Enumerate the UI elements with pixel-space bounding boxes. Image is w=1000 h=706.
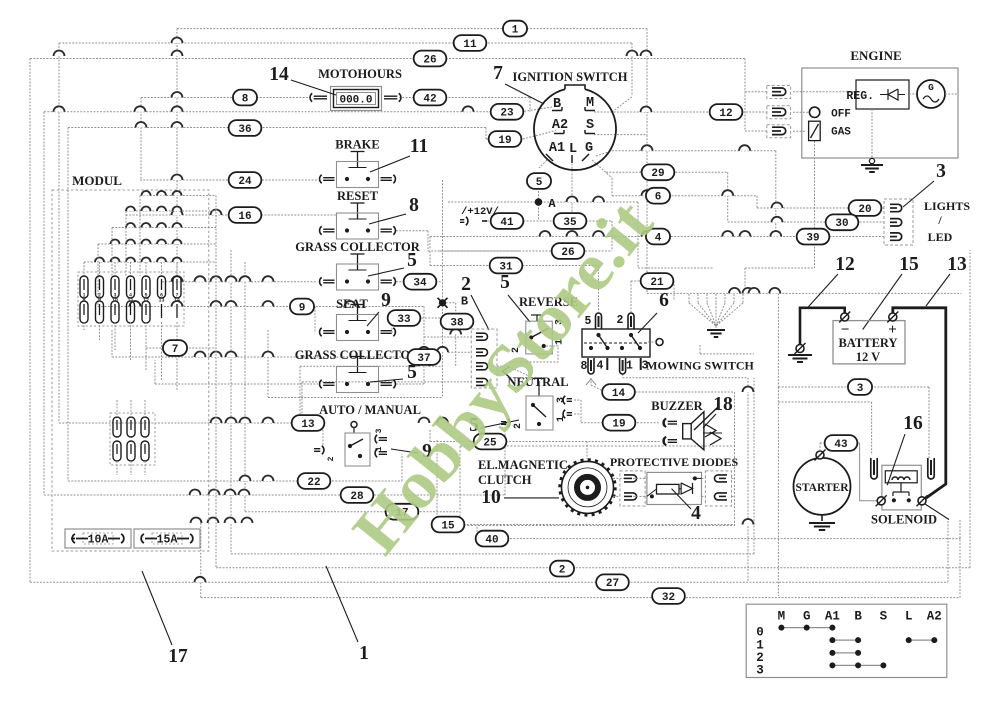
svg-text:13: 13: [301, 419, 315, 431]
svg-text:34: 34: [413, 278, 427, 290]
svg-text:STARTER: STARTER: [795, 482, 849, 494]
svg-text:MOTOHOURS: MOTOHOURS: [318, 67, 402, 81]
svg-text:33: 33: [397, 314, 411, 326]
svg-text:S: S: [586, 118, 594, 133]
svg-text:12: 12: [143, 298, 149, 304]
svg-text:1: 1: [512, 24, 519, 36]
svg-text:5: 5: [407, 250, 417, 271]
svg-text:10: 10: [481, 487, 501, 508]
svg-text:10: 10: [112, 298, 118, 304]
svg-text:9: 9: [381, 290, 391, 311]
svg-text:41: 41: [500, 217, 514, 229]
svg-text:RESET: RESET: [337, 189, 379, 203]
svg-text:IGNITION SWITCH: IGNITION SWITCH: [513, 70, 628, 84]
svg-text:M: M: [586, 96, 594, 111]
svg-text:PROTECTIVE DIODES: PROTECTIVE DIODES: [610, 455, 739, 469]
svg-text:12: 12: [835, 254, 855, 275]
svg-text:SOLENOID: SOLENOID: [871, 513, 937, 527]
svg-text:000.0: 000.0: [339, 95, 372, 107]
svg-text:3: 3: [375, 428, 384, 433]
svg-text:8: 8: [409, 195, 419, 216]
svg-text:13: 13: [158, 298, 164, 304]
svg-text:23: 23: [500, 108, 514, 120]
svg-text:12 V: 12 V: [856, 350, 880, 364]
svg-text:G: G: [928, 82, 934, 93]
svg-text:11: 11: [463, 39, 477, 51]
svg-text:4: 4: [597, 360, 604, 373]
svg-text:M: M: [778, 610, 786, 624]
svg-text:2: 2: [327, 456, 336, 461]
svg-text:BATTERY: BATTERY: [838, 336, 897, 350]
svg-text:3: 3: [756, 664, 764, 678]
svg-text:A1: A1: [549, 141, 565, 156]
svg-text:GAS: GAS: [831, 127, 851, 139]
svg-text:19: 19: [612, 419, 625, 431]
svg-text:AUTO / MANUAL: AUTO / MANUAL: [319, 403, 421, 417]
svg-text:3: 3: [936, 161, 946, 182]
svg-text:1: 1: [375, 446, 384, 451]
svg-text:8: 8: [581, 360, 588, 373]
svg-text:ENGINE: ENGINE: [850, 48, 901, 63]
svg-text:10A: 10A: [88, 534, 109, 547]
svg-text:31: 31: [499, 261, 513, 273]
svg-text:CLUTCH: CLUTCH: [478, 473, 532, 487]
svg-text:B: B: [461, 295, 468, 309]
svg-text:19: 19: [498, 135, 511, 147]
svg-text:L: L: [569, 142, 577, 157]
svg-text:17: 17: [168, 646, 188, 667]
svg-text:B: B: [854, 610, 862, 624]
svg-text:LED: LED: [928, 230, 953, 244]
svg-text:13: 13: [947, 254, 967, 275]
svg-text:2: 2: [513, 423, 524, 429]
svg-text:L: L: [905, 610, 913, 624]
svg-text:A2: A2: [552, 118, 568, 133]
svg-text:14: 14: [269, 64, 289, 85]
svg-text:A1: A1: [825, 610, 840, 624]
svg-text:/: /: [937, 213, 942, 227]
svg-text:11: 11: [410, 136, 428, 157]
svg-text:LIGHTS: LIGHTS: [924, 199, 970, 213]
svg-text:1: 1: [626, 360, 633, 373]
svg-text:15: 15: [441, 520, 455, 532]
svg-text:14: 14: [612, 388, 626, 400]
svg-text:3: 3: [857, 383, 864, 395]
svg-text:OFF: OFF: [831, 109, 851, 121]
svg-text:GRASS COLLECTOR: GRASS COLLECTOR: [295, 240, 420, 254]
svg-text:30: 30: [835, 218, 848, 230]
svg-text:5: 5: [500, 272, 510, 293]
svg-text:2: 2: [461, 274, 471, 295]
svg-text:MOWING SWITCH: MOWING SWITCH: [646, 359, 754, 373]
svg-text:27: 27: [606, 578, 619, 590]
svg-text:5: 5: [536, 177, 543, 189]
svg-text:S: S: [880, 610, 888, 624]
svg-text:20: 20: [858, 204, 871, 216]
svg-text:36: 36: [238, 124, 251, 136]
svg-text:11: 11: [127, 298, 133, 304]
svg-text:6: 6: [655, 192, 662, 204]
svg-text:26: 26: [423, 54, 436, 66]
svg-text:6: 6: [659, 290, 669, 311]
svg-text:40: 40: [485, 534, 498, 546]
svg-text:38: 38: [450, 317, 464, 329]
svg-text:16: 16: [903, 413, 923, 434]
svg-text:7: 7: [172, 344, 179, 356]
svg-text:14: 14: [174, 298, 180, 304]
svg-text:12: 12: [719, 108, 732, 120]
svg-text:4: 4: [691, 503, 701, 524]
svg-text:39: 39: [806, 232, 819, 244]
svg-text:EL.MAGNETIC: EL.MAGNETIC: [478, 458, 568, 472]
svg-text:37: 37: [417, 353, 430, 365]
svg-text:8: 8: [82, 298, 85, 304]
svg-text:G: G: [585, 141, 593, 156]
svg-text:2: 2: [617, 314, 624, 327]
svg-text:G: G: [803, 610, 811, 624]
svg-text:1: 1: [359, 643, 369, 664]
svg-text:32: 32: [662, 592, 675, 604]
svg-text:24: 24: [238, 176, 252, 188]
svg-text:9: 9: [299, 302, 306, 314]
svg-text:21: 21: [650, 277, 664, 289]
svg-text:8: 8: [242, 93, 249, 105]
svg-text:15A: 15A: [157, 534, 178, 547]
svg-text:29: 29: [651, 168, 664, 180]
svg-text:MODUL: MODUL: [72, 173, 122, 188]
svg-text:1: 1: [556, 416, 567, 422]
svg-text:22: 22: [307, 477, 320, 489]
svg-text:REG.: REG.: [846, 90, 874, 103]
svg-text:BRAKE: BRAKE: [335, 138, 379, 152]
svg-text:7: 7: [493, 63, 503, 84]
svg-text:16: 16: [238, 211, 251, 223]
svg-text:A: A: [548, 197, 556, 211]
svg-text:3: 3: [556, 397, 567, 403]
svg-text:15: 15: [899, 254, 919, 275]
svg-text:A2: A2: [927, 610, 942, 624]
svg-text:42: 42: [423, 93, 436, 105]
svg-text:43: 43: [834, 439, 848, 451]
svg-text:2: 2: [559, 564, 566, 576]
svg-text:18: 18: [713, 394, 733, 415]
svg-text:BUZZER: BUZZER: [651, 399, 703, 413]
svg-text:9: 9: [98, 298, 101, 304]
